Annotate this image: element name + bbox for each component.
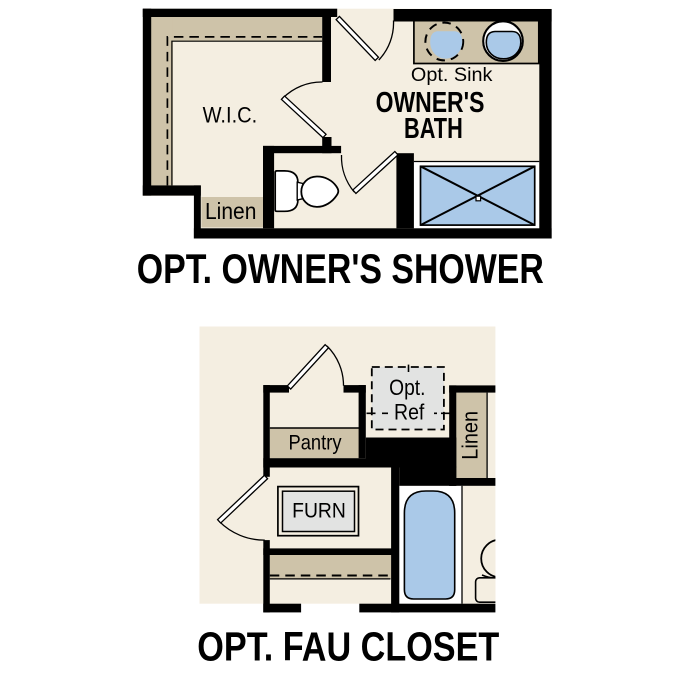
svg-text:BATH: BATH bbox=[404, 113, 463, 145]
svg-text:W.I.C.: W.I.C. bbox=[203, 103, 258, 128]
svg-text:Opt. Sink: Opt. Sink bbox=[411, 65, 493, 86]
svg-text:Ref: Ref bbox=[394, 400, 425, 425]
svg-text:FURN: FURN bbox=[292, 500, 346, 523]
svg-text:OPT. FAU CLOSET: OPT. FAU CLOSET bbox=[197, 624, 499, 670]
svg-text:Linen: Linen bbox=[205, 198, 256, 224]
svg-text:Pantry: Pantry bbox=[289, 431, 342, 454]
svg-text:Opt.: Opt. bbox=[389, 375, 425, 400]
svg-text:Linen: Linen bbox=[458, 411, 483, 460]
svg-text:OPT. OWNER'S SHOWER: OPT. OWNER'S SHOWER bbox=[137, 245, 544, 292]
